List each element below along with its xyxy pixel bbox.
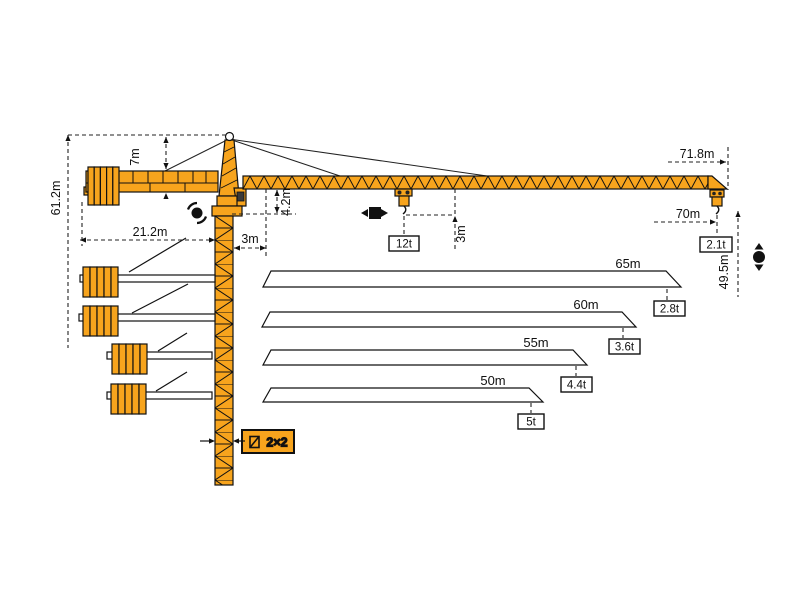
slew-rotation-icon bbox=[188, 203, 206, 223]
jib-length-label: 50m bbox=[480, 373, 505, 388]
capacity-label: 4.4t bbox=[567, 380, 587, 392]
tie-rod-jib-1 bbox=[229, 139, 340, 176]
jib-length-label: 65m bbox=[615, 256, 640, 271]
mast-section-callout: 2×2 bbox=[200, 430, 294, 453]
jib-option-row-65m: 65m 2.8t bbox=[263, 256, 685, 316]
diagram-canvas: 2×2 65m 2.8t 60m 3.6t 55m 4.4t bbox=[0, 0, 800, 600]
counterweight-blocks bbox=[88, 167, 119, 205]
jib-option-bar bbox=[263, 350, 587, 365]
head-height-label: 7m bbox=[128, 148, 142, 165]
tip-load-label: 2.1t bbox=[706, 240, 726, 252]
cab-window bbox=[237, 192, 244, 201]
hook-height-label: 49.5m bbox=[717, 255, 731, 290]
tower-mast-lattice bbox=[215, 216, 233, 485]
ballast-leader bbox=[156, 372, 187, 391]
max-load-label: 12t bbox=[396, 239, 413, 251]
mast-width-arrow-left bbox=[209, 438, 215, 443]
jib-option-bar bbox=[263, 388, 543, 402]
max-radius-label: 71.8m bbox=[680, 147, 715, 161]
crane-load-diagram: 2×2 65m 2.8t 60m 3.6t 55m 4.4t bbox=[0, 0, 800, 600]
trolley-travel-icon bbox=[361, 207, 388, 219]
ballast-option-1 bbox=[80, 238, 215, 297]
root-clearance-label: 4.2m bbox=[279, 188, 293, 216]
capacity-label: 3.6t bbox=[615, 342, 635, 354]
capacity-label: 5t bbox=[526, 417, 536, 429]
total-height-label: 61.2m bbox=[49, 181, 63, 216]
tie-rod-jib-2 bbox=[229, 139, 487, 176]
jib-option-bar bbox=[262, 312, 636, 327]
jib-option-bar bbox=[263, 271, 681, 287]
trolley-hook-block bbox=[395, 189, 412, 214]
ballast-leader bbox=[129, 238, 186, 272]
main-jib-lattice bbox=[243, 176, 708, 189]
main-jib bbox=[243, 176, 727, 189]
jib-length-options: 65m 2.8t 60m 3.6t 55m 4.4t 50m 5t bbox=[262, 256, 685, 429]
ballast-leader bbox=[158, 333, 187, 351]
trolley-drop-label: 3m bbox=[454, 225, 468, 242]
mast-section-label: 2×2 bbox=[266, 436, 287, 450]
ballast-option-3 bbox=[107, 333, 212, 374]
capacity-label: 2.8t bbox=[660, 304, 680, 316]
slew-neck bbox=[217, 196, 237, 206]
turntable bbox=[212, 206, 242, 216]
jib-option-row-55m: 55m 4.4t bbox=[263, 335, 592, 392]
mast-width-arrow-right bbox=[233, 438, 239, 443]
tip-hook-block bbox=[710, 190, 724, 214]
ballast-option-4 bbox=[107, 372, 212, 414]
hook-icon bbox=[403, 206, 406, 214]
min-radius-label: 3m bbox=[241, 232, 258, 246]
crane-structure: 2×2 bbox=[79, 133, 727, 486]
tip-hook-icon bbox=[716, 206, 719, 214]
jib-option-row-60m: 60m 3.6t bbox=[262, 297, 640, 354]
ballast-leader bbox=[132, 284, 188, 313]
apex-pulley bbox=[226, 133, 234, 141]
counterjib-radius-label: 21.2m bbox=[133, 225, 168, 239]
jib-option-row-50m: 50m 5t bbox=[263, 373, 544, 429]
hook-hoist-icon bbox=[753, 243, 765, 271]
jib-length-label: 60m bbox=[573, 297, 598, 312]
counter-jib bbox=[84, 167, 218, 205]
tip-radius-label: 70m bbox=[676, 207, 700, 221]
jib-length-label: 55m bbox=[523, 335, 548, 350]
jib-tip bbox=[708, 176, 727, 189]
tie-rod-counterjib bbox=[165, 139, 229, 171]
